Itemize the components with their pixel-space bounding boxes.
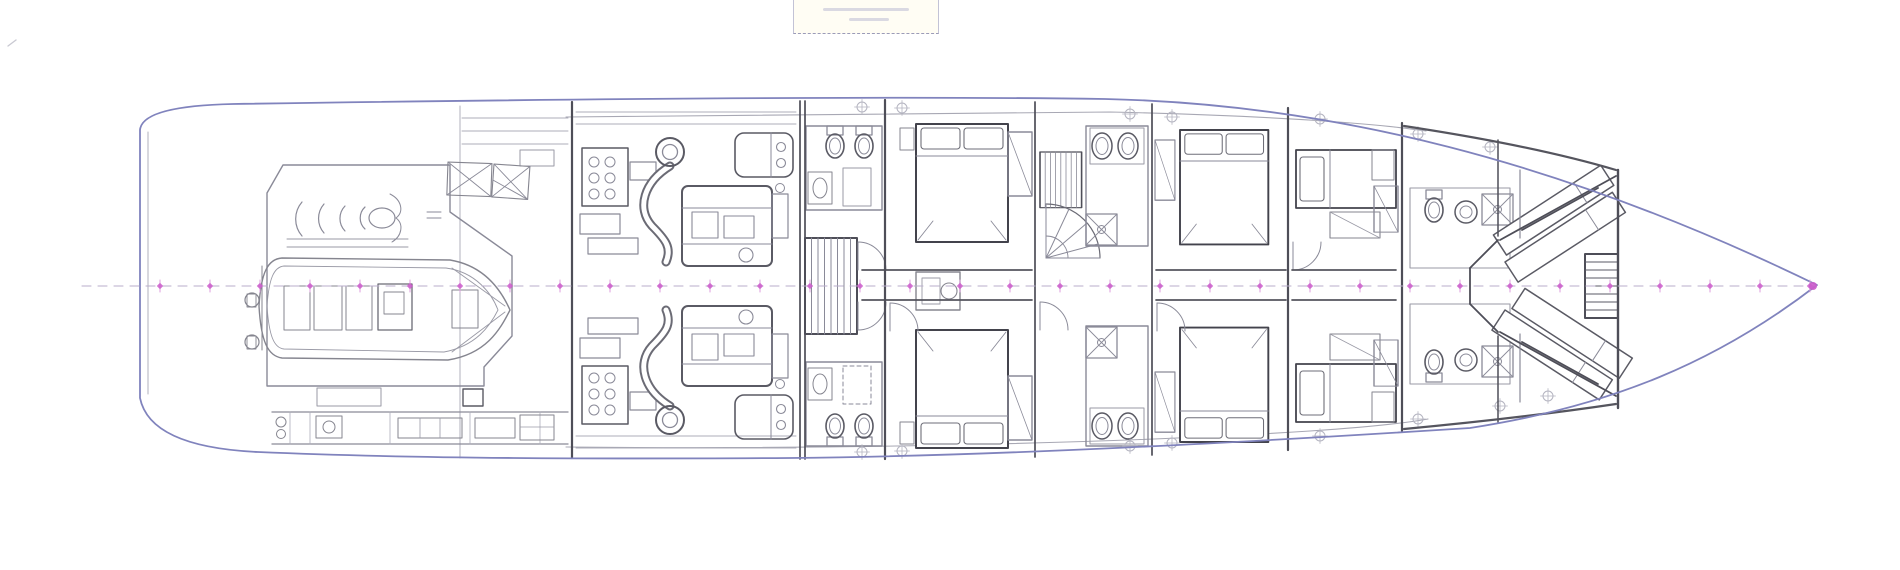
generator-port bbox=[735, 133, 793, 177]
tender-hull bbox=[259, 258, 510, 360]
lobby-door bbox=[858, 242, 886, 270]
station-tick-diamond bbox=[207, 283, 213, 289]
vip-bed-aft-starboard bbox=[916, 330, 1008, 448]
station-tick-diamond bbox=[807, 283, 813, 289]
jetski-arc bbox=[340, 206, 345, 231]
nightstand bbox=[900, 128, 914, 150]
crew-bathroom-wall bbox=[1410, 188, 1510, 268]
lobby-door bbox=[858, 302, 886, 330]
tender-console-top bbox=[384, 292, 404, 314]
toilet bbox=[855, 126, 873, 158]
guest-bed-starboard bbox=[1296, 364, 1396, 422]
station-tick-diamond bbox=[1407, 283, 1413, 289]
garage-top-cabinet bbox=[520, 150, 554, 166]
station-tick-diamond bbox=[907, 283, 913, 289]
station-tick-diamond bbox=[1557, 283, 1563, 289]
jetski-arc bbox=[296, 202, 302, 236]
station-tick-diamond bbox=[607, 283, 613, 289]
sink bbox=[1092, 133, 1112, 159]
station-tick-diamond bbox=[1507, 283, 1513, 289]
tender-outboard-bracket bbox=[247, 336, 256, 349]
plan-svg bbox=[0, 0, 1900, 570]
station-tick-diamond bbox=[1257, 283, 1263, 289]
station-tick-diamond bbox=[457, 283, 463, 289]
wardrobe bbox=[1155, 372, 1175, 432]
crew-berths-port bbox=[1489, 165, 1629, 282]
wardrobe bbox=[1008, 376, 1032, 440]
station-tick-diamond bbox=[1757, 283, 1763, 289]
shower-tray bbox=[843, 168, 871, 206]
station-tick-diamond bbox=[707, 283, 713, 289]
toilet bbox=[1425, 350, 1443, 382]
cabin-door bbox=[1293, 242, 1321, 270]
station-tick-diamond bbox=[307, 283, 313, 289]
tender-tube-inner bbox=[267, 266, 498, 352]
deck-fitting bbox=[1411, 412, 1426, 427]
station-tick-diamond bbox=[1707, 283, 1713, 289]
station-tick-diamond bbox=[357, 283, 363, 289]
guest-dresser-diag bbox=[1330, 212, 1380, 238]
deck-fitting bbox=[1123, 107, 1138, 122]
vanity-basin bbox=[813, 374, 827, 394]
lines bbox=[812, 238, 851, 334]
galley-cabinet-dividers bbox=[420, 418, 440, 438]
galley-sink bbox=[277, 430, 286, 439]
wardrobe bbox=[1155, 140, 1175, 200]
station-tick-diamond bbox=[157, 283, 163, 289]
tender-console bbox=[378, 284, 412, 330]
lines bbox=[1045, 152, 1076, 208]
galley-stove bbox=[316, 416, 342, 438]
engine-starboard bbox=[580, 306, 788, 434]
engine-block bbox=[682, 306, 772, 386]
bed-outline bbox=[916, 124, 1008, 242]
garage-hatch bbox=[492, 164, 530, 199]
title-block-text-smudge bbox=[823, 8, 909, 11]
deck-fitting bbox=[895, 101, 910, 116]
scan-artifact bbox=[8, 40, 16, 46]
sink bbox=[1455, 201, 1477, 223]
galley-stove-burner bbox=[323, 421, 335, 433]
corridor-stool bbox=[941, 283, 957, 299]
station-tick-diamond bbox=[1307, 283, 1313, 289]
crew-bathroom-wall bbox=[1410, 304, 1510, 384]
station-tick-diamond bbox=[657, 283, 663, 289]
deck-fitting bbox=[1493, 399, 1508, 414]
spiral-stair-treads bbox=[1046, 204, 1100, 258]
station-tick-diamond bbox=[957, 283, 963, 289]
sink bbox=[1118, 133, 1138, 159]
jetski-arc bbox=[319, 204, 324, 233]
vip-bed-fwd-starboard bbox=[1180, 328, 1268, 442]
nightstand bbox=[900, 422, 914, 444]
shower bbox=[1086, 214, 1117, 245]
galley-cabinet bbox=[475, 418, 515, 438]
toilet bbox=[826, 126, 844, 158]
shower bbox=[1086, 327, 1117, 358]
title-block bbox=[793, 0, 939, 34]
cabin-door bbox=[890, 303, 918, 331]
crew-berths-starboard bbox=[1492, 286, 1632, 403]
tender-bow-seat bbox=[452, 290, 478, 328]
station-tick-diamond bbox=[1457, 283, 1463, 289]
sink bbox=[1455, 349, 1477, 371]
galley-sink bbox=[276, 417, 286, 427]
galley-dividers bbox=[290, 412, 540, 444]
garage-winch bbox=[463, 389, 483, 406]
deck-fitting bbox=[1541, 389, 1556, 404]
vip-bed-fwd-port bbox=[1180, 130, 1268, 244]
jetski-body bbox=[369, 208, 395, 228]
jetski-arc bbox=[360, 207, 365, 229]
tender-bench bbox=[314, 286, 342, 330]
vanity bbox=[808, 368, 832, 400]
garage-step bbox=[317, 388, 381, 406]
station-tick-diamond bbox=[1107, 283, 1113, 289]
vip-bed-aft-port bbox=[916, 124, 1008, 242]
sink bbox=[1118, 413, 1138, 439]
jetski-detail bbox=[427, 212, 441, 218]
tender-outboard-bracket bbox=[247, 294, 256, 307]
bed-outline bbox=[1180, 328, 1268, 442]
sink bbox=[1092, 413, 1112, 439]
shower-tray-dashed bbox=[843, 366, 871, 404]
vanity bbox=[808, 172, 832, 204]
station-tick-diamond bbox=[1207, 283, 1213, 289]
toilet bbox=[826, 414, 844, 446]
toilet bbox=[855, 414, 873, 446]
bow-tip-marker bbox=[1809, 282, 1817, 290]
station-tick-diamond bbox=[1657, 283, 1663, 289]
guest-dresser-diag bbox=[1330, 334, 1380, 360]
wardrobe bbox=[1008, 132, 1032, 196]
spiral-stair-arc bbox=[1046, 204, 1100, 258]
bed-outline bbox=[1296, 364, 1396, 422]
title-block-text-smudge bbox=[849, 18, 889, 21]
garage-tracks bbox=[287, 239, 408, 247]
generator-starboard bbox=[735, 395, 793, 439]
bed-outline bbox=[916, 330, 1008, 448]
station-tick-diamond bbox=[1057, 283, 1063, 289]
garage-platform bbox=[267, 165, 512, 386]
tender-bench bbox=[346, 286, 372, 330]
cabin-door bbox=[1040, 302, 1068, 330]
station-tick-diamond bbox=[757, 283, 763, 289]
tender-bench bbox=[284, 286, 310, 330]
deck-fitting bbox=[1123, 439, 1138, 454]
galley-fridge bbox=[520, 415, 554, 440]
station-tick-diamond bbox=[1007, 283, 1013, 289]
bed-outline bbox=[1180, 130, 1268, 244]
station-tick-diamond bbox=[1607, 283, 1613, 289]
toilet bbox=[1425, 190, 1443, 222]
galley-cabinet bbox=[398, 418, 462, 438]
station-tick-diamond bbox=[1157, 283, 1163, 289]
garage-hatch bbox=[447, 162, 492, 197]
engine-block bbox=[682, 186, 772, 266]
yacht-deck-plan-page bbox=[0, 0, 1900, 570]
engine-port bbox=[580, 138, 788, 266]
crew-hull-wall-bottom bbox=[1404, 404, 1616, 429]
engine-room-side-lines bbox=[576, 112, 796, 448]
vanity-basin bbox=[813, 178, 827, 198]
station-tick-diamond bbox=[1357, 283, 1363, 289]
station-tick-diamond bbox=[557, 283, 563, 289]
foyer-staircase bbox=[1040, 152, 1082, 208]
deck-fitting bbox=[1165, 110, 1180, 125]
deck-fitting bbox=[855, 100, 870, 115]
garage-top-pipes bbox=[462, 118, 568, 144]
